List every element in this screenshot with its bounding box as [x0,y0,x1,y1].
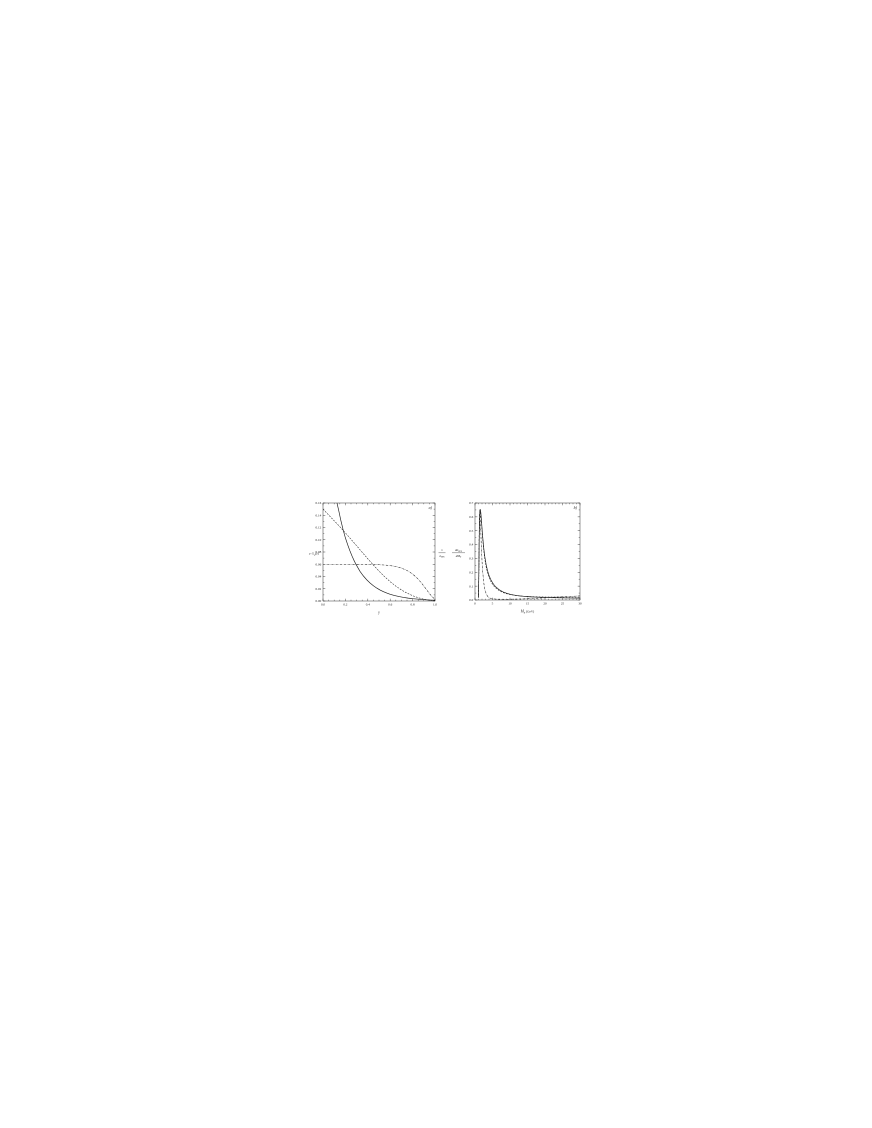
x-tick-label: 0.4 [366,602,370,606]
x-tick-label: 0 [474,601,476,605]
y-tick-label: 0.1 [469,584,473,588]
y-tick-label: 0.0 [469,598,473,602]
x-tick-label: 0.8 [411,602,415,606]
y-axis-label: y Gp(y) [308,552,320,557]
y-tick-label: 0.10 [316,538,322,542]
paper-page: 0.00.20.40.60.81.00.000.020.040.060.080.… [0,0,872,1128]
curve-steep-falling-flux [337,503,435,600]
curve-flat-flux [323,564,435,599]
panel-letter: b) [574,505,578,510]
figure: 0.00.20.40.60.81.00.000.020.040.060.080.… [0,0,872,1128]
y-tick-label: 0.7 [469,501,473,505]
plot-frame [475,503,580,600]
curve-linear-falling-flux [323,509,435,601]
y-axis-label-frac2-num: dσDPE [455,548,463,553]
y-tick-label: 0.2 [469,570,473,574]
x-tick-label: 25 [561,601,565,605]
y-axis-label-frac1-den: σDPE [439,554,445,559]
curve-mass-spectrum-solid [479,509,581,598]
y-tick-label: 0.5 [469,529,473,533]
y-tick-label: 0.3 [469,557,473,561]
x-tick-label: 5 [492,601,494,605]
y-tick-label: 0.14 [316,513,322,517]
x-tick-label: 30 [578,601,582,605]
plot-frame [323,503,435,601]
x-axis-label: MX (GeV) [520,610,534,615]
y-tick-label: 0.02 [316,587,322,591]
y-tick-label: 0.16 [316,501,322,505]
y-tick-label: 0.4 [469,543,473,547]
curves-group [323,503,435,601]
y-axis-label-frac1-num: 1 [441,548,443,552]
y-tick-label: 0.00 [316,599,322,603]
panel-b-plot: 0510152025300.00.10.20.30.40.50.60.7b)MX… [428,494,598,626]
x-tick-label: 10 [508,601,512,605]
x-tick-label: 0.2 [343,602,347,606]
x-tick-label: 0.0 [321,602,325,606]
y-tick-label: 0.06 [316,562,322,566]
curves-group [479,509,581,599]
x-axis-label: y [377,611,380,615]
x-tick-label: 0.6 [388,602,392,606]
x-tick-label: 20 [543,601,547,605]
y-tick-label: 0.12 [316,526,322,530]
x-tick-label: 15 [526,601,530,605]
y-tick-label: 0.04 [316,575,322,579]
y-axis-label-frac2-den: dMX [456,554,462,559]
y-tick-label: 0.6 [469,515,473,519]
